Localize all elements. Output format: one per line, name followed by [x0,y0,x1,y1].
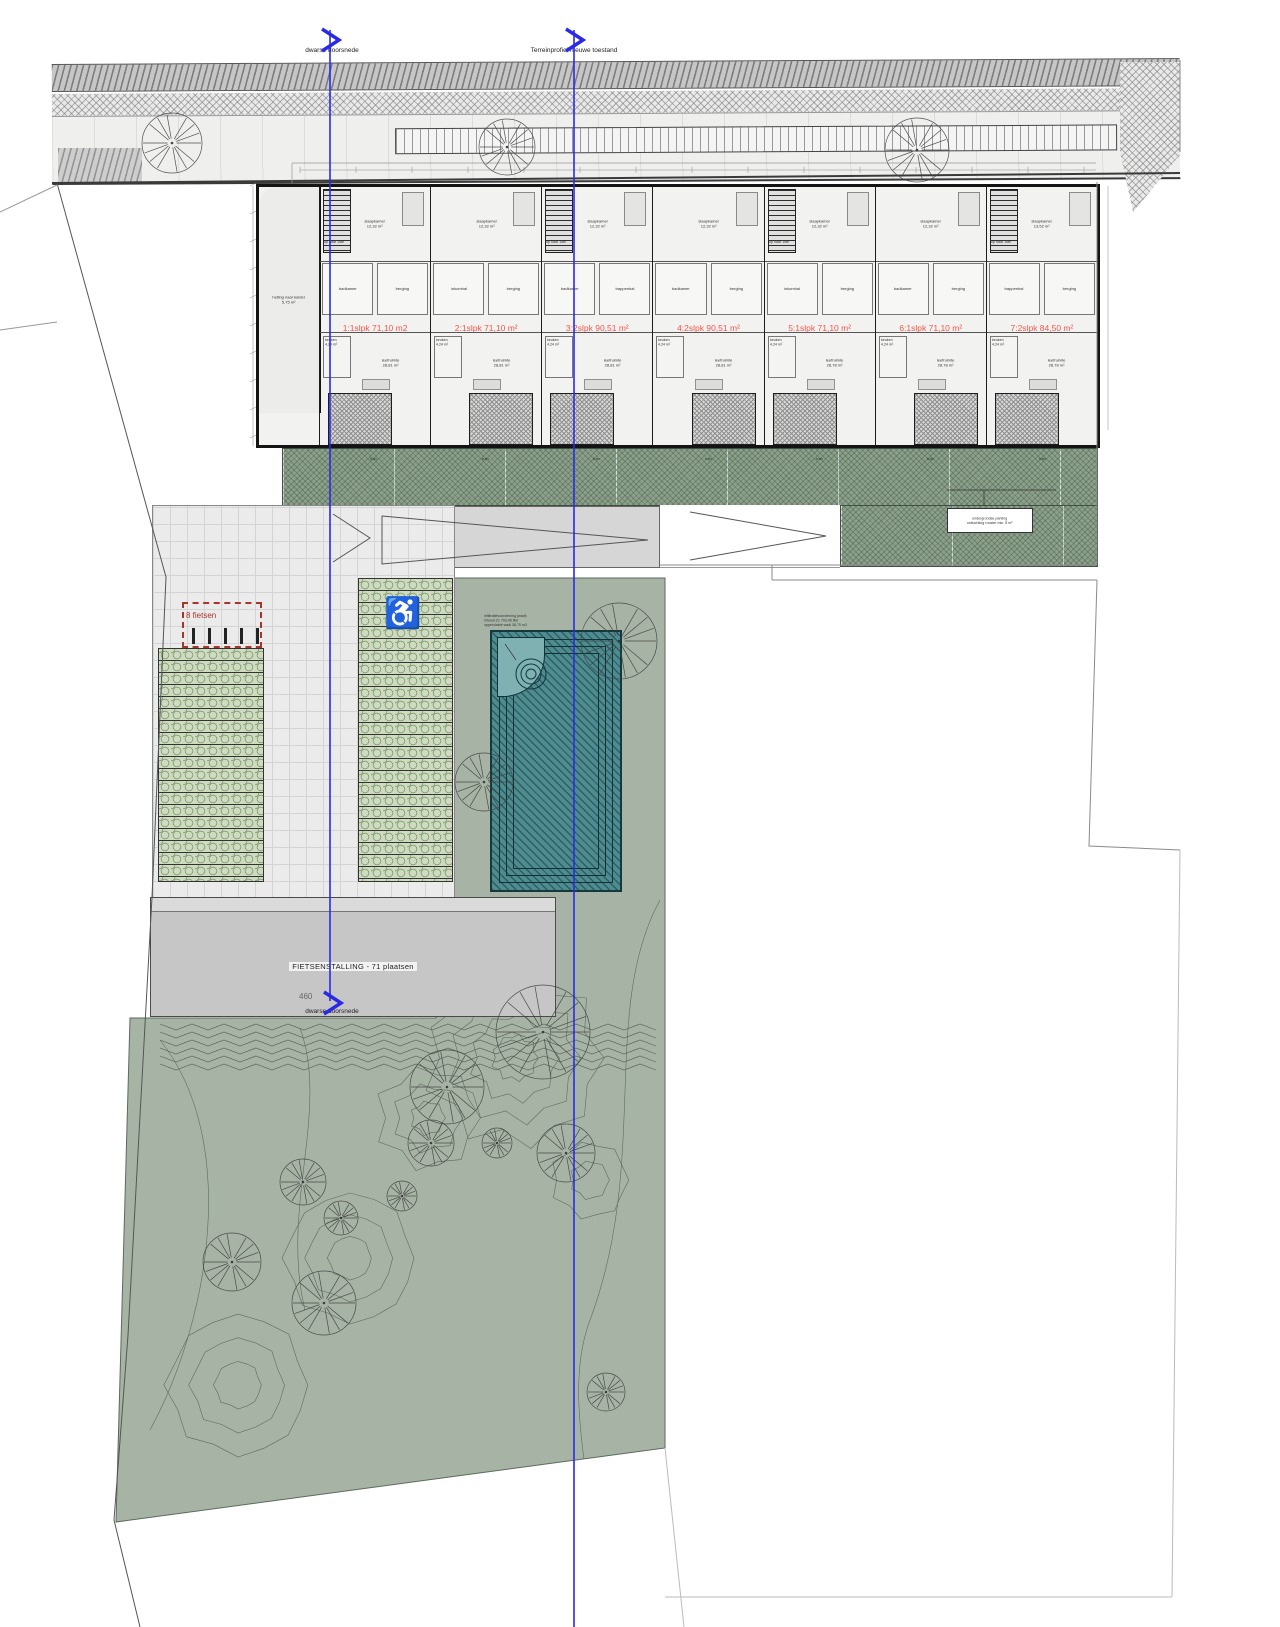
dimension-label: 460 [299,986,312,1004]
bed-icon [513,192,535,226]
slope-hatch [160,1048,656,1054]
living-zone: keuken4,24 m²leefruimte28,78 m² [876,332,986,393]
bedroom-label-text: slaapkamer12,32 m² [476,219,497,229]
tree-icon [324,1201,358,1235]
bed-icon [847,192,869,226]
room-b-text: berging [507,287,520,292]
kitchen-label-text: keuken4,24 m² [658,338,670,347]
unit-area-label: 2:1slpk 71,10 m² [431,318,541,331]
bedroom-zone: slaapkamer12,32 m² [431,187,541,262]
room-b: berging [822,263,873,315]
wadi-pond [490,630,622,892]
stair-label-text: op naar 1ste [324,240,344,245]
bedroom-label-text: slaapkamer12,32 m² [365,219,386,229]
service-zone: trappenhalberging [987,261,1097,317]
room-a-text: badkamer [672,287,690,292]
sofa-icon [807,379,835,390]
sofa-icon [584,379,612,390]
room-a: badkamer [655,263,706,315]
room-b: berging [933,263,984,315]
kitchen-label-text: keuken4,24 m² [547,338,559,347]
stair-label: op naar 1ste [991,240,1035,250]
tree-icon [292,1271,356,1335]
room-a: badkamer [322,263,373,315]
bike-storage-beam [151,898,555,912]
room-a: badkamer [544,263,595,315]
bike-parking-reserved-box: 8 fietsen [182,602,262,648]
service-zone: badkamerberging [876,261,986,317]
bed-icon [958,192,980,226]
contour-line [579,900,660,1560]
room-b-label: berging [712,264,761,314]
stair-label-text: op naar 1ste [769,240,789,245]
garden-label-text: tuin [705,457,711,462]
bed-icon [1069,192,1091,226]
room-b-label: berging [823,264,872,314]
slope-hatch [160,1040,656,1046]
living-label-text: leefruimte28,81 m² [492,358,510,368]
kitchen-label-text: keuken4,24 m² [992,338,1004,347]
living-zone: keuken4,24 m²leefruimte28,78 m² [765,332,875,393]
garden-label: tuin [987,452,1098,466]
tree-icon [587,1373,625,1411]
bedroom-label-text: slaapkamer12,32 m² [809,219,830,229]
corner-pavement [1120,62,1180,212]
bed-icon [402,192,424,226]
room-b-text: berging [952,287,965,292]
stair-label: op naar 1ste [769,240,813,250]
garden-label: tuin [318,452,429,466]
contour-line [411,1101,445,1136]
garden-label-text: tuin [370,457,376,462]
tree-icon [537,1124,595,1182]
room-a: inkomhal [767,263,818,315]
basement-ramp-annex: helling naar kelder 5,75 m² [259,187,321,413]
apartment-unit: slaapkamer13,52 m²op naar 1stetrappenhal… [986,187,1097,445]
kitchen-box: keuken4,24 m² [434,336,462,378]
kitchen-label-text: keuken4,24 m² [881,338,893,347]
room-a-label: badkamer [656,264,705,314]
bedroom-label-text: slaapkamer13,52 m² [1032,219,1053,229]
room-a-label: badkamer [545,264,594,314]
kitchen-label-text: keuken4,24 m² [325,338,337,347]
room-b-label: berging [489,264,538,314]
bedroom-label-text: slaapkamer12,32 m² [587,219,608,229]
terrace [328,393,392,445]
room-a-text: badkamer [561,287,579,292]
living-zone: keuken4,24 m²leefruimte28,78 m² [987,332,1097,393]
contour-line [471,1013,560,1104]
room-b-label: berging [1045,264,1094,314]
apartment-building: helling naar kelder 5,75 m² slaapkamer12… [256,184,1100,448]
contour-line [213,1361,261,1409]
contour-line [282,1193,414,1324]
room-b: berging [377,263,428,315]
living-label-text: leefruimte28,81 m² [381,358,399,368]
terrace [550,393,614,445]
stair-label: op naar 1ste [546,240,590,250]
footpath [660,505,840,568]
garden-label-text: tuin [593,457,599,462]
service-zone: inkomhalberging [765,261,875,317]
living-label-text: leefruimte28,81 m² [604,358,622,368]
stair-label: op naar 1ste [324,240,368,250]
tree-icon [203,1233,261,1291]
room-a-text: trappenhal [1005,287,1024,292]
contour-line [571,1161,609,1199]
slope-hatch [160,1056,656,1062]
terrace [995,393,1059,445]
apartment-unit: slaapkamer12,32 m²op naar 1stebadkamerbe… [319,187,430,445]
sofa-icon [473,379,501,390]
contour-line [327,1236,371,1280]
kitchen-label: keuken4,24 m² [325,338,352,358]
kitchen-label: keuken4,24 m² [547,338,574,358]
living-label-text: leefruimte28,78 m² [1048,358,1066,368]
room-a-label: badkamer [323,264,372,314]
stair-icon: op naar 1ste [545,189,573,253]
room-a-label: badkamer [879,264,928,314]
kitchen-box: keuken4,24 m² [656,336,684,378]
bedroom-label-text: slaapkamer12,32 m² [698,219,719,229]
room-a-text: inkomhal [784,287,800,292]
slope-hatch [160,1032,656,1038]
contour-line [395,1084,463,1153]
garden-label-row: tuintuintuintuintuintuintuin [318,452,1098,466]
living-zone: keuken4,24 m²leefruimte28,81 m² [542,332,652,393]
unit-area-label: 3:2slpk 90,51 m² [542,318,652,331]
contour-line [378,1067,481,1171]
unit-area-label: 6:1slpk 71,10 m² [876,318,986,331]
room-a-text: badkamer [894,287,912,292]
parking-bays-west [158,648,264,882]
apartment-unit: slaapkamer12,32 m²op naar 1stebadkamertr… [541,187,652,445]
kitchen-label: keuken4,24 m² [992,338,1019,358]
kitchen-box: keuken4,24 m² [990,336,1018,378]
tree-icon [280,1159,326,1205]
unit-area-label: 1:1slpk 71,10 m2 [320,318,430,331]
unit-area-label: 7:2slpk 84,50 m² [987,318,1097,331]
garden-label-text: tuin [816,457,822,462]
living-label-text: leefruimte28,81 m² [715,358,733,368]
room-b: berging [711,263,762,315]
unit-area-label: 4:2slpk 90,51 m² [653,318,763,331]
garden-label: tuin [652,452,763,466]
bedroom-label-text: slaapkamer12,32 m² [920,219,941,229]
room-b-text: berging [729,287,742,292]
garden-label-text: tuin [928,457,934,462]
apartment-unit: slaapkamer12,32 m²inkomhalberging2:1slpk… [430,187,541,445]
contour-line [150,1040,209,1430]
stair-icon: op naar 1ste [323,189,351,253]
road-surface [52,58,1180,92]
kitchen-label-text: keuken4,24 m² [436,338,448,347]
room-b-text: trappenhal [615,287,634,292]
sofa-icon [695,379,723,390]
bike-storage-roof: FIETSENSTALLING - 71 plaatsen [150,897,556,1017]
wheelchair-icon: ♿ [384,596,421,631]
contour-line [298,1028,310,1310]
contour-line [305,1215,393,1302]
kitchen-label-text: keuken4,24 m² [770,338,782,347]
service-zone: badkamertrappenhal [542,261,652,317]
terrace [773,393,837,445]
slope-hatch [160,1064,656,1070]
bedroom-zone: slaapkamer12,32 m² [653,187,763,262]
contour-line [164,1314,308,1457]
apartment-unit: slaapkamer12,32 m²badkamerberging6:1slpk… [875,187,986,445]
stair-icon: op naar 1ste [990,189,1018,253]
service-zone: badkamerberging [320,261,430,317]
room-a-text: badkamer [339,287,357,292]
wadi-note: infiltratievoorziening (wadi) inhoud 21 … [484,614,580,644]
room-b: trappenhal [599,263,650,315]
apartment-unit: slaapkamer12,32 m²op naar 1steinkomhalbe… [764,187,875,445]
apartment-unit: slaapkamer12,32 m²badkamerberging4:2slpk… [652,187,763,445]
bed-icon [736,192,758,226]
unit-area-label: 5:1slpk 71,10 m² [765,318,875,331]
sofa-icon [362,379,390,390]
room-a: badkamer [878,263,929,315]
driveway-pavement [58,148,142,182]
living-label-text: leefruimte28,78 m² [937,358,955,368]
garden-label: tuin [541,452,652,466]
room-a-label: inkomhal [768,264,817,314]
room-b-text: berging [841,287,854,292]
kitchen-box: keuken4,24 m² [323,336,351,378]
unit-row: slaapkamer12,32 m²op naar 1stebadkamerbe… [319,187,1097,445]
room-b-text: berging [396,287,409,292]
room-b: berging [488,263,539,315]
tree-icon [408,1120,454,1166]
underground-parking-note: ondergrondse parking ontluchting rooster… [947,508,1033,533]
terrace [692,393,756,445]
garden-label: tuin [429,452,540,466]
section-label-top-left: dwarse doorsnede [262,47,402,54]
terrace [469,393,533,445]
kitchen-label: keuken4,24 m² [658,338,685,358]
bike-storage-label: FIETSENSTALLING - 71 plaatsen [151,956,555,974]
garden-label-text: tuin [482,457,488,462]
room-a: inkomhal [433,263,484,315]
room-a: trappenhal [989,263,1040,315]
service-zone: inkomhalberging [431,261,541,317]
kitchen-label: keuken4,24 m² [770,338,797,358]
planter-wall [395,124,1117,154]
terrace [914,393,978,445]
room-b-label: berging [378,264,427,314]
room-b-label: trappenhal [600,264,649,314]
kitchen-label: keuken4,24 m² [881,338,908,358]
bedroom-zone: slaapkamer12,32 m² [876,187,986,262]
section-label-bottom: dwarse doorsnede [262,1008,402,1015]
tree-icon [387,1181,417,1211]
site-plan-canvas: tuintuintuintuintuintuintuin bank ♿ 8 fi… [0,0,1280,1627]
living-zone: keuken4,24 m²leefruimte28,81 m² [653,332,763,393]
sofa-icon [918,379,946,390]
room-b-label: berging [934,264,983,314]
kitchen-box: keuken4,24 m² [879,336,907,378]
kitchen-label: keuken4,24 m² [436,338,463,358]
garden-label-text: tuin [1039,457,1045,462]
section-label-top-right: Terreinprofiel nieuwe toestand [504,47,644,54]
contour-line [189,1338,285,1433]
contour-line [492,1034,539,1081]
garden-label: tuin [764,452,875,466]
tree-icon [482,1128,512,1158]
sofa-icon [1029,379,1057,390]
living-zone: keuken4,24 m²leefruimte28,81 m² [320,332,430,393]
room-a-text: inkomhal [451,287,467,292]
stair-icon: op naar 1ste [768,189,796,253]
garden-label: tuin [875,452,986,466]
stair-label-text: op naar 1ste [546,240,566,245]
bed-icon [624,192,646,226]
tree-icon [410,1050,484,1124]
kitchen-box: keuken4,24 m² [768,336,796,378]
living-zone: keuken4,24 m²leefruimte28,81 m² [431,332,541,393]
service-zone: badkamerberging [653,261,763,317]
street-band [52,52,1181,184]
kitchen-box: keuken4,24 m² [545,336,573,378]
stair-label-text: op naar 1ste [991,240,1011,245]
room-b-text: berging [1063,287,1076,292]
living-label-text: leefruimte28,78 m² [826,358,844,368]
room-a-label: trappenhal [990,264,1039,314]
room-a-label: inkomhal [434,264,483,314]
slope-hatch [160,1024,656,1030]
room-b: berging [1044,263,1095,315]
contour-line [553,1142,629,1219]
